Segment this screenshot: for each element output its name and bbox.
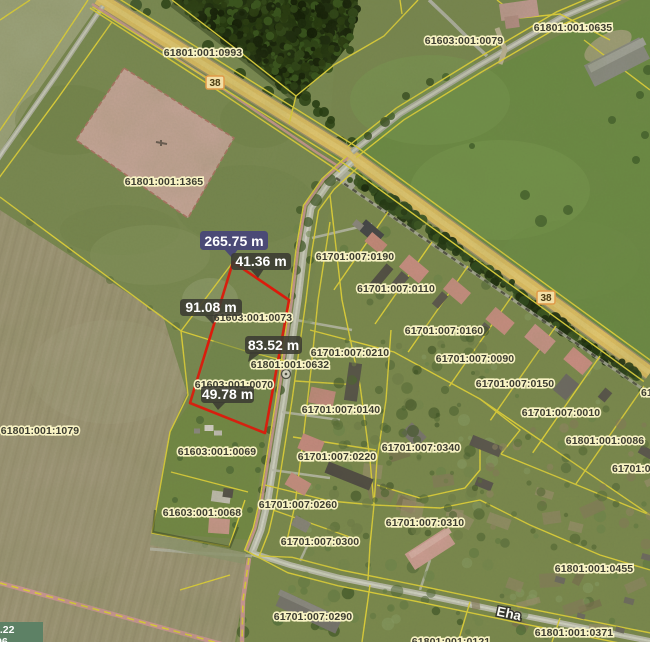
svg-text:265.75 m: 265.75 m <box>204 233 263 249</box>
svg-text:61: 61 <box>641 387 650 399</box>
svg-text:61603:001:0079: 61603:001:0079 <box>425 35 504 47</box>
svg-text:61801:001:0632: 61801:001:0632 <box>251 359 330 371</box>
svg-text:41.36 m: 41.36 m <box>235 253 286 269</box>
svg-text:49.78 m: 49.78 m <box>202 386 253 402</box>
svg-text:61701:007:0290: 61701:007:0290 <box>274 611 353 623</box>
svg-text:38: 38 <box>209 78 221 89</box>
svg-text:61701:007:0210: 61701:007:0210 <box>311 347 390 359</box>
svg-text:83.52 m: 83.52 m <box>248 337 299 353</box>
svg-text:61801:001:0086: 61801:001:0086 <box>566 435 645 447</box>
svg-text:61701:007:0110: 61701:007:0110 <box>357 283 435 295</box>
svg-text:61701:007:0300: 61701:007:0300 <box>281 536 360 548</box>
svg-text:91.08 m: 91.08 m <box>185 299 236 315</box>
svg-text:61801:001:0455: 61801:001:0455 <box>555 563 634 575</box>
svg-text:61701:007:0150: 61701:007:0150 <box>476 378 555 390</box>
svg-text:61701:007:0220: 61701:007:0220 <box>298 451 377 463</box>
svg-text:61701:007:0310: 61701:007:0310 <box>386 517 465 529</box>
svg-text:61701:007:0260: 61701:007:0260 <box>259 499 338 511</box>
svg-text:61801:001:0635: 61801:001:0635 <box>534 22 613 34</box>
svg-text:7.22: 7.22 <box>0 624 15 636</box>
svg-text:61701:007:0090: 61701:007:0090 <box>436 353 515 365</box>
svg-text:38: 38 <box>540 293 552 304</box>
svg-text:61801:001:0993: 61801:001:0993 <box>164 47 243 59</box>
svg-text:61801:001:1365: 61801:001:1365 <box>125 176 204 188</box>
svg-text:61603:001:0068: 61603:001:0068 <box>163 507 242 519</box>
svg-text:61801:001:1079: 61801:001:1079 <box>1 425 80 437</box>
svg-text:61603:001:0069: 61603:001:0069 <box>178 446 257 458</box>
svg-text:61701:007:0160: 61701:007:0160 <box>405 325 484 337</box>
svg-text:61701:00: 61701:00 <box>612 463 650 475</box>
svg-text:96: 96 <box>0 636 8 642</box>
svg-text:61701:007:0140: 61701:007:0140 <box>302 404 381 416</box>
svg-text:61701:007:0010: 61701:007:0010 <box>522 407 601 419</box>
svg-text:61801:001:0371: 61801:001:0371 <box>535 627 614 639</box>
svg-text:61801:001:0121: 61801:001:0121 <box>412 636 491 642</box>
svg-text:61701:007:0340: 61701:007:0340 <box>382 442 461 454</box>
svg-text:61701:007:0190: 61701:007:0190 <box>316 251 395 263</box>
